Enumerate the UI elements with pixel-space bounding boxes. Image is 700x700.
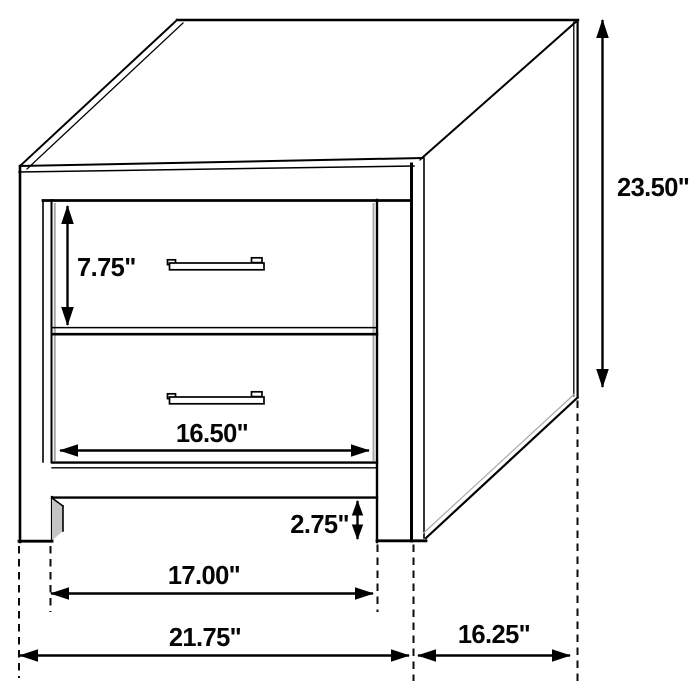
arrowhead-left — [59, 444, 78, 457]
handle-bar — [170, 263, 265, 270]
dim-label: 7.75" — [77, 254, 136, 282]
top-front-edge-line — [20, 158, 422, 166]
arrowhead-left — [19, 649, 38, 662]
side-bottom-edge-line — [426, 398, 578, 539]
handle-right-post — [252, 392, 263, 397]
arrowhead-up — [61, 205, 74, 224]
side-panel — [423, 21, 578, 538]
dim-drawer-front-height: 7.75" — [61, 205, 136, 326]
dim-overall-width: 21.75" — [19, 624, 410, 662]
nightstand-dimension-diagram: 7.75" 16.50" 2.75" 17.00" 21.75" 16.25" — [0, 0, 700, 700]
top-left-edge-line — [20, 20, 177, 166]
dim-label: 23.50" — [617, 174, 689, 202]
dim-label: 17.00" — [168, 562, 240, 590]
handle-right-post — [252, 258, 263, 263]
arrowhead-right — [355, 587, 374, 600]
dim-overall-depth: 16.25" — [417, 621, 571, 662]
arrowhead-right — [391, 649, 410, 662]
arrowhead-up — [352, 500, 363, 516]
dim-drawer-width: 16.50" — [59, 420, 370, 457]
arrowhead-right — [351, 444, 370, 457]
arrowhead-left — [417, 649, 436, 662]
dim-base-clearance: 2.75" — [290, 500, 363, 540]
drawer1-handle — [168, 258, 265, 270]
side-bottom-shadow-line — [423, 394, 575, 534]
arrowhead-up — [596, 19, 609, 38]
dim-overall-height: 23.50" — [596, 19, 689, 388]
arrowhead-left — [50, 587, 69, 600]
top-surface — [19, 20, 578, 172]
dim-label: 16.50" — [176, 420, 248, 448]
base-and-legs — [19, 497, 426, 541]
top-front-edge-inner-line — [19, 166, 414, 172]
handle-bar — [170, 397, 265, 404]
dim-label: 16.25" — [458, 621, 530, 649]
drawer2-handle — [168, 392, 265, 404]
dim-label: 21.75" — [169, 624, 241, 652]
arrowhead-down — [352, 525, 363, 541]
arrowhead-down — [61, 307, 74, 326]
top-left-edge-inner-line — [27, 23, 183, 169]
dim-label: 2.75" — [290, 511, 349, 539]
front-frame — [20, 158, 424, 542]
diagram-canvas: 7.75" 16.50" 2.75" 17.00" 21.75" 16.25" — [0, 0, 700, 700]
arrowhead-down — [596, 369, 609, 388]
top-right-edge-inner-line — [420, 23, 574, 160]
dim-inner-leg-span: 17.00" — [50, 562, 374, 600]
arrowhead-right — [552, 649, 571, 662]
